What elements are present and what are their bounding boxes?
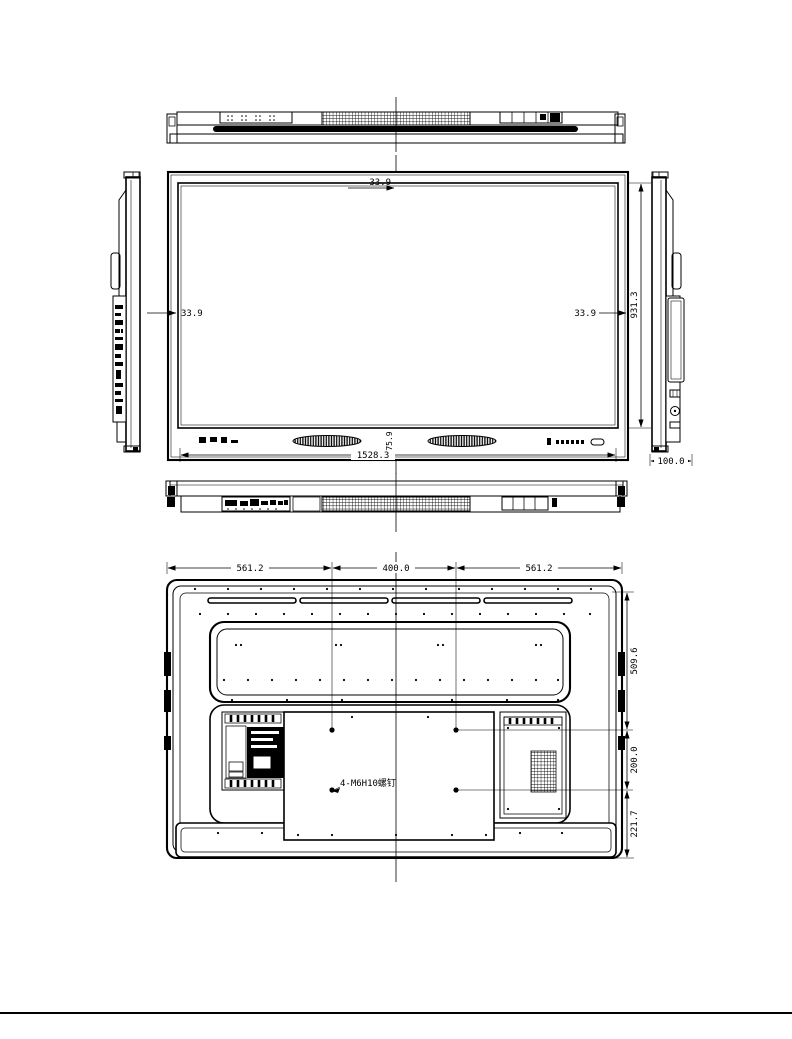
speaker-grille-left bbox=[293, 436, 361, 447]
dim-rear-vesa-to-bottom: 221.7 bbox=[630, 810, 640, 837]
drawing-page: 33.9 33.9 33.9 931.3 1528.3 75.9 bbox=[0, 0, 792, 1039]
dim-front-bottom-bezel: 75.9 bbox=[385, 431, 394, 450]
dim-front-width: 1528.3 bbox=[357, 451, 390, 461]
right-side-body bbox=[652, 177, 666, 451]
left-side-body bbox=[126, 177, 140, 451]
dim-rear-right-span: 561.2 bbox=[525, 564, 552, 574]
left-side-view bbox=[111, 172, 140, 452]
rear-right-box bbox=[500, 712, 566, 818]
footer-rule bbox=[0, 1012, 792, 1014]
right-side-view: 100.0 bbox=[650, 172, 692, 467]
right-side-door bbox=[668, 298, 684, 382]
bottom-view-strip bbox=[170, 481, 623, 496]
dim-side-depth: 100.0 bbox=[657, 457, 684, 467]
dim-front-height: 931.3 bbox=[630, 291, 640, 318]
dim-front-right-bezel: 33.9 bbox=[574, 309, 596, 319]
top-black-bar bbox=[213, 126, 578, 132]
technical-drawing-canvas: 33.9 33.9 33.9 931.3 1528.3 75.9 bbox=[0, 0, 792, 1039]
dim-rear-vesa-width: 400.0 bbox=[382, 564, 409, 574]
dim-rear-top-to-vesa: 509.6 bbox=[630, 647, 640, 674]
rear-view: 4-M6H10螺钉 561.2 400.0 561.2 509.6 200.0 … bbox=[164, 552, 640, 882]
bottom-view bbox=[166, 473, 627, 532]
top-port-block bbox=[220, 112, 292, 123]
rear-vent-grid bbox=[531, 751, 556, 792]
front-view: 33.9 33.9 33.9 931.3 1528.3 75.9 bbox=[147, 155, 651, 474]
dim-rear-left-span: 561.2 bbox=[236, 564, 263, 574]
top-port-dots bbox=[228, 116, 274, 120]
vesa-mount-plate bbox=[284, 712, 494, 840]
dim-rear-vesa-height: 200.0 bbox=[630, 746, 640, 773]
bottom-vent-grille bbox=[322, 497, 470, 511]
dim-front-left-bezel: 33.9 bbox=[181, 309, 203, 319]
rear-left-connector-block bbox=[222, 712, 284, 790]
bottom-ports bbox=[225, 499, 288, 509]
top-view bbox=[167, 97, 625, 152]
speaker-grille-right bbox=[428, 436, 496, 447]
label-vesa-screws: 4-M6H10螺钉 bbox=[340, 778, 396, 789]
dim-front-top-bezel: 33.9 bbox=[369, 178, 391, 188]
top-vent-grille bbox=[322, 112, 470, 125]
front-outer-frame bbox=[168, 172, 628, 460]
